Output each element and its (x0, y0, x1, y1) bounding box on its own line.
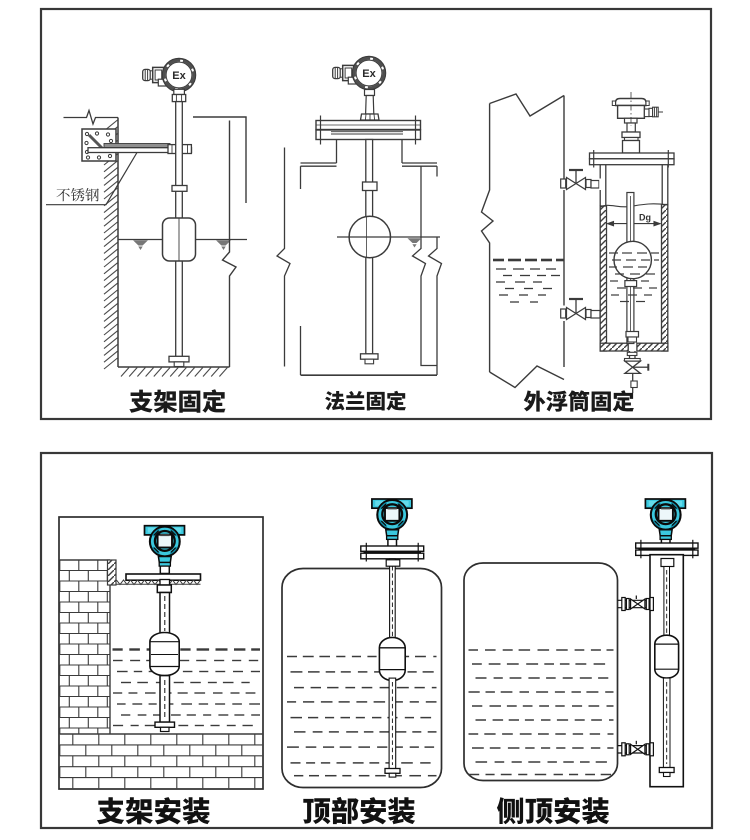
svg-text:Dg: Dg (639, 213, 651, 223)
